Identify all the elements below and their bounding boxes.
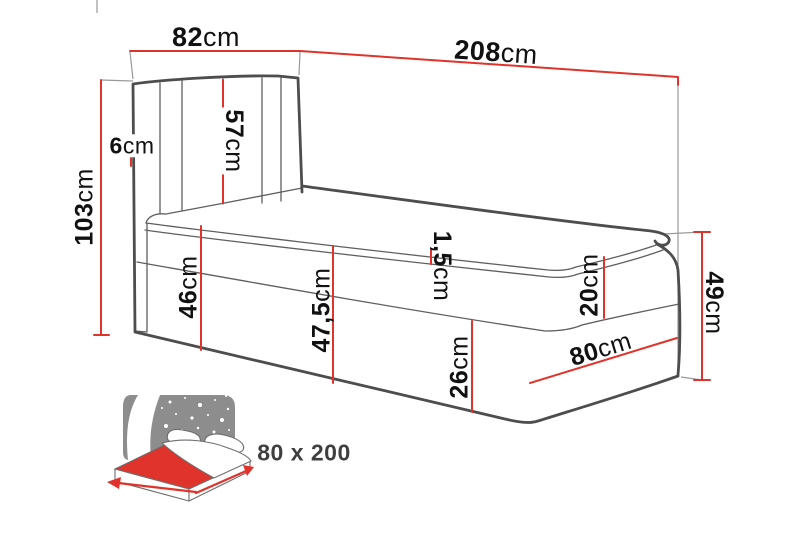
size-badge: 80 x 200 xyxy=(257,441,351,464)
diagram-linework xyxy=(0,0,800,533)
bed-outline xyxy=(133,76,680,423)
dim-label-base-height: 26cm xyxy=(447,335,473,398)
dim-label-headboard-width: 82cm xyxy=(172,24,240,52)
dim-label-mattress-height: 20cm xyxy=(577,253,603,316)
dim-label-headboard-panel-height: 57cm xyxy=(220,107,246,174)
headboard xyxy=(133,76,302,331)
dim-label-total-height: 103cm xyxy=(72,168,98,246)
dim-label-topper-thickness: 1,5cm xyxy=(428,231,454,302)
dim-label-side-height-head: 46cm xyxy=(176,255,202,318)
dim-label-foot-height: 49cm xyxy=(700,271,726,334)
dim-label-bed-length: 208cm xyxy=(453,36,538,69)
dim-label-headboard-thickness: 6cm xyxy=(108,134,157,157)
bed-size-icon xyxy=(107,395,254,501)
dim-label-side-height-mid: 47,5cm xyxy=(309,268,335,353)
mattress-far-edge xyxy=(302,186,669,245)
bed-dimension-diagram: 82cm 208cm 103cm 57cm 6cm 46cm 47,5cm 1,… xyxy=(0,0,800,533)
